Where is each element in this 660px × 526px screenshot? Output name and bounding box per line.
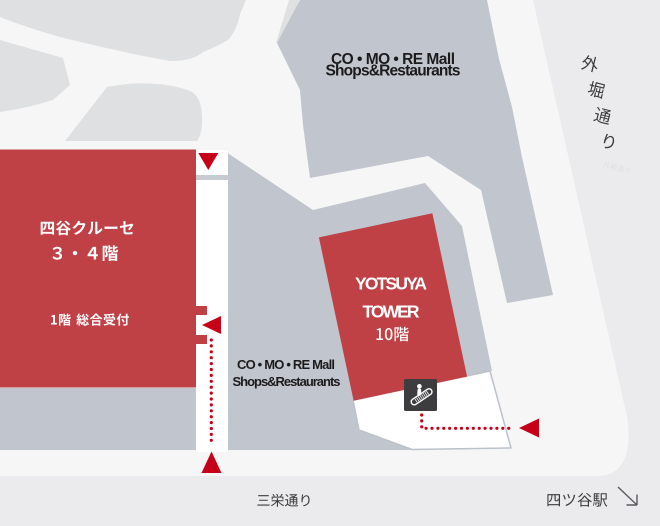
svg-text:CO • MO • RE Mall: CO • MO • RE Mall bbox=[237, 357, 335, 372]
svg-text:Shops&Restaurants: Shops&Restaurants bbox=[326, 63, 461, 80]
svg-text:YOTSUYA: YOTSUYA bbox=[355, 274, 427, 294]
svg-text:TOWER: TOWER bbox=[363, 302, 420, 322]
svg-text:Shops&Restaurants: Shops&Restaurants bbox=[233, 374, 341, 389]
